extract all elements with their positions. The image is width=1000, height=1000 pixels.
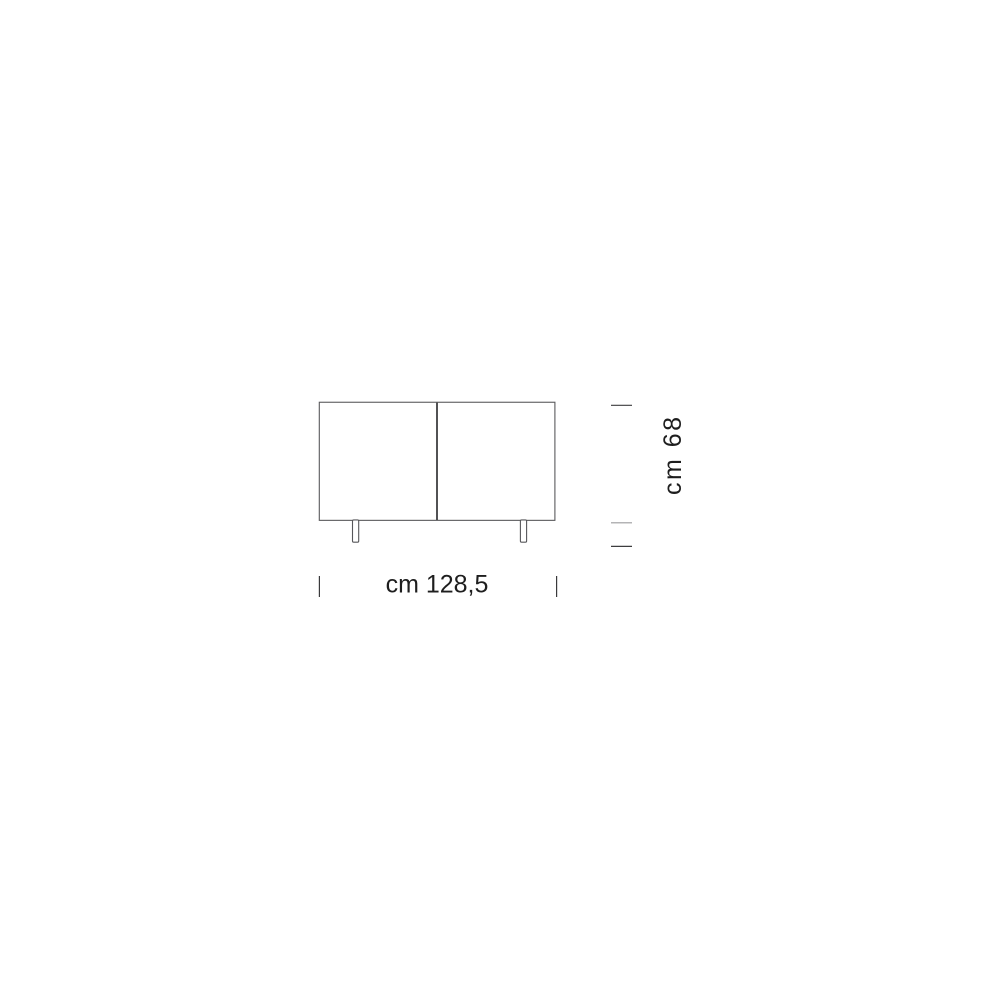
svg-text:cm 68: cm 68 <box>659 414 687 495</box>
svg-text:cm 128,5: cm 128,5 <box>386 571 489 599</box>
